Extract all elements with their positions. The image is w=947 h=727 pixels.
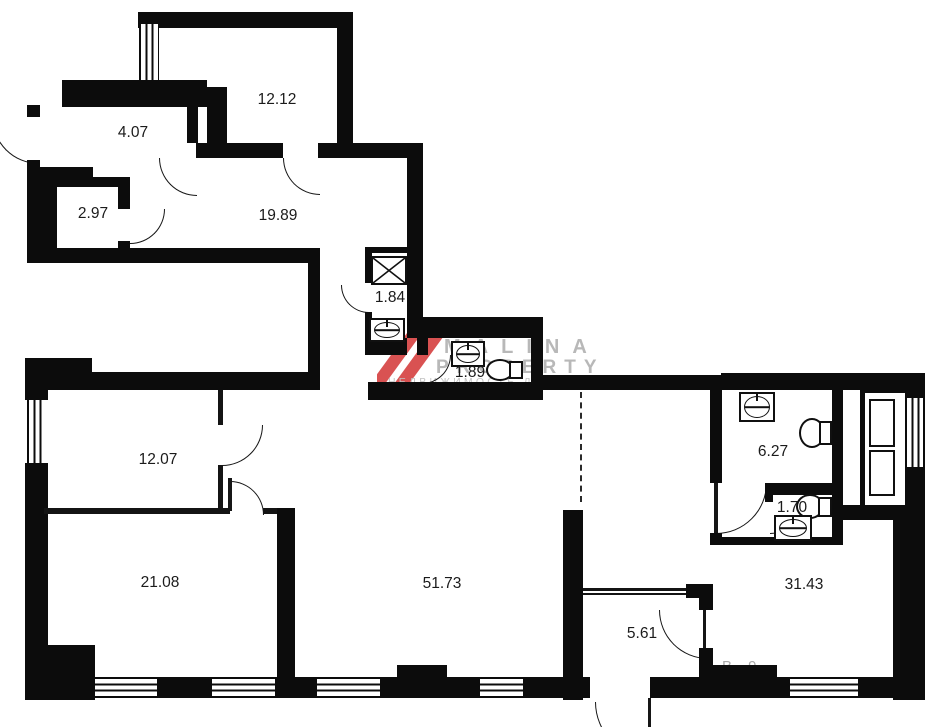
wall-segment [277, 508, 295, 685]
room-area-label: 31.43 [785, 576, 824, 594]
door-arc [230, 481, 264, 515]
wall-segment [650, 677, 790, 698]
wall-segment [710, 390, 722, 483]
door-arc [222, 425, 263, 466]
room-area-label: 19.89 [259, 207, 298, 225]
floor-plan: MALINA PROPERTY НЕДВИЖИМОСТЬ ДЛЯ БИЗНЕСА… [0, 0, 947, 727]
room-area-label: 4.07 [118, 124, 148, 142]
wall-segment [686, 584, 713, 598]
elevator-door [869, 399, 895, 447]
door-arc [283, 158, 320, 195]
wall-segment [187, 107, 198, 143]
partition [263, 508, 277, 514]
wall-segment [563, 510, 583, 700]
wall-segment [157, 677, 212, 698]
wall-segment [417, 338, 428, 355]
window [480, 677, 523, 698]
sink-icon [739, 392, 775, 422]
wall-segment [380, 677, 480, 698]
toilet-icon [799, 418, 832, 448]
window [27, 400, 46, 463]
toilet-icon [486, 359, 523, 381]
partition [583, 588, 689, 591]
wall-segment [27, 187, 57, 248]
window [212, 677, 275, 698]
room-area-label: 21.08 [141, 574, 180, 592]
wall-segment [699, 598, 713, 610]
window [139, 24, 159, 80]
wall-segment [138, 12, 353, 28]
entry-door-arc [0, 117, 39, 164]
window [317, 677, 380, 698]
wall-segment [337, 12, 353, 158]
wall-segment [407, 143, 423, 325]
room-area-label: 1.70 [777, 499, 807, 517]
wall-segment [308, 248, 320, 390]
room-area-label: 6.27 [758, 443, 788, 461]
wall-segment [832, 390, 843, 537]
wall-segment [25, 645, 95, 700]
wall-segment [118, 241, 130, 248]
window [95, 677, 157, 698]
wall-segment [27, 105, 40, 117]
room-area-label: 1.89 [455, 364, 485, 382]
wall-segment [196, 143, 283, 158]
wall-pilaster [397, 665, 447, 678]
sink-icon [774, 515, 812, 541]
wall-segment [407, 317, 543, 338]
window [790, 677, 858, 698]
wall-segment [543, 375, 721, 390]
wall-segment [27, 248, 308, 263]
door-arc [716, 483, 767, 534]
wall-segment [893, 505, 925, 700]
window [905, 398, 923, 467]
room-area-label: 2.97 [78, 205, 108, 223]
wall-segment [843, 505, 893, 520]
door-arc [595, 702, 651, 727]
wall-segment [721, 373, 862, 390]
wall-segment [27, 167, 93, 187]
room-area-label: 5.61 [627, 625, 657, 643]
partition [218, 465, 223, 510]
ventilation-shaft-icon [371, 256, 407, 285]
door-arc [130, 209, 165, 244]
wall-segment [93, 177, 130, 187]
partition [583, 593, 689, 596]
wall-segment [118, 187, 130, 209]
wall-segment [25, 372, 308, 390]
room-area-label: 12.12 [258, 91, 297, 109]
partition [44, 508, 230, 514]
wall-segment [25, 358, 92, 372]
door-arc [159, 158, 197, 196]
wall-segment [368, 382, 543, 400]
sink-icon [369, 318, 405, 342]
wall-segment [25, 390, 48, 400]
wall-segment [699, 648, 713, 677]
wall-segment [62, 80, 207, 107]
elevator-door [869, 450, 895, 496]
room-area-label: 12.07 [139, 451, 178, 469]
door-arc [341, 285, 369, 313]
wall-segment [765, 495, 773, 502]
room-area-label: 1.84 [375, 289, 405, 307]
partition [218, 390, 223, 425]
zone-divider-dashed-line [580, 392, 582, 502]
wall-segment [25, 463, 48, 645]
room-area-label: 51.73 [423, 575, 462, 593]
